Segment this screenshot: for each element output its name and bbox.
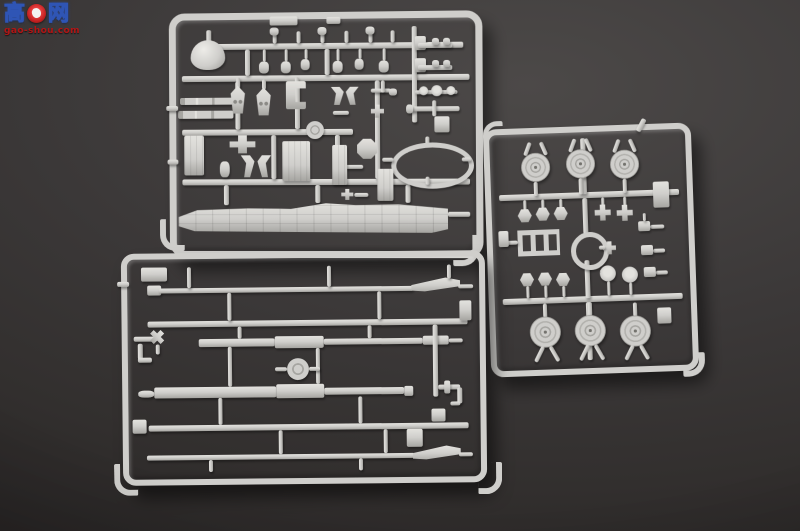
- frame-hook: [114, 464, 138, 496]
- watermark-logo: 高 网: [4, 3, 80, 24]
- stem: [562, 286, 565, 297]
- muzzle-part: [138, 391, 154, 398]
- hex-cap-part: [518, 209, 532, 222]
- stem: [263, 50, 266, 62]
- runner: [325, 49, 330, 75]
- small-part: [431, 85, 442, 96]
- stem: [656, 270, 668, 274]
- frame-hook: [683, 352, 706, 377]
- machine-gun-part: [180, 98, 233, 105]
- fitting-part: [444, 380, 450, 393]
- hatch-panel-part: [332, 145, 347, 185]
- gun-barrel-section: [154, 386, 276, 398]
- stem: [297, 31, 301, 43]
- hatch-panel-part: [377, 169, 393, 201]
- small-part: [379, 60, 389, 72]
- runner: [228, 347, 232, 387]
- hatch-panel-part: [184, 136, 204, 176]
- stem: [391, 30, 395, 42]
- runner: [271, 135, 276, 179]
- stem: [458, 284, 473, 288]
- gun-barrel-section: [199, 338, 275, 347]
- stem: [337, 49, 340, 61]
- wheels-sprue: [483, 122, 700, 377]
- stem: [447, 264, 451, 278]
- hub-cap-part: [600, 265, 617, 282]
- stem: [305, 49, 308, 59]
- small-part: [259, 61, 269, 73]
- gun-barrel-sleeve: [275, 336, 324, 349]
- frame-hook: [478, 462, 502, 494]
- stem: [236, 78, 240, 88]
- frame-stub: [168, 160, 179, 165]
- frame-tab: [431, 409, 445, 422]
- fitting-part: [257, 155, 272, 177]
- gun-barrel-section: [324, 387, 404, 395]
- frame-stub: [166, 106, 178, 111]
- runner: [148, 318, 468, 327]
- frame-tab: [326, 17, 340, 24]
- runner: [315, 185, 320, 203]
- stem: [623, 197, 626, 206]
- fitting-part: [371, 105, 384, 118]
- runner: [182, 74, 470, 82]
- stem: [599, 246, 605, 250]
- frame-tab: [657, 307, 672, 323]
- stem: [383, 48, 386, 60]
- fitting-part: [346, 87, 360, 105]
- stem: [588, 302, 592, 316]
- stem: [285, 49, 288, 61]
- oval-ring-part: [391, 142, 474, 189]
- frame-tab: [434, 116, 449, 132]
- watermark: 高 网 gao-shou.com: [4, 3, 80, 36]
- road-wheel: [565, 149, 595, 179]
- stem: [359, 49, 362, 59]
- frame-hook: [636, 118, 647, 133]
- frame-hook: [482, 121, 503, 144]
- stem: [279, 430, 283, 454]
- shield-part: [254, 87, 273, 115]
- gun-barrel-section: [324, 338, 423, 345]
- watermark-url: gao-shou.com: [4, 26, 80, 36]
- small-part: [432, 38, 439, 45]
- stem: [218, 398, 222, 425]
- stem: [534, 346, 545, 363]
- rail-part: [147, 453, 415, 461]
- rail-part: [159, 286, 413, 294]
- stem: [623, 179, 627, 193]
- small-part: [389, 88, 397, 95]
- stem: [624, 345, 635, 361]
- runner: [582, 198, 588, 234]
- small-part: [406, 104, 413, 113]
- hex-cap-part: [520, 273, 534, 286]
- road-wheel: [574, 315, 606, 347]
- runner: [503, 293, 683, 305]
- small-part: [419, 86, 428, 95]
- stem: [594, 344, 606, 361]
- hex-cap-part: [535, 207, 549, 220]
- disc-part: [287, 358, 309, 380]
- stem: [359, 458, 363, 470]
- frame-hook: [160, 219, 185, 251]
- stem: [462, 157, 471, 161]
- hatch-panel-part: [282, 141, 310, 181]
- frame-tab: [459, 300, 471, 320]
- stem: [262, 79, 266, 89]
- small-part: [270, 27, 279, 35]
- stem: [639, 344, 650, 360]
- small-part: [443, 60, 450, 67]
- fitting-part: [138, 358, 152, 363]
- stem: [382, 158, 393, 162]
- small-part: [220, 161, 230, 177]
- bracket-part: [638, 221, 650, 231]
- stem: [209, 460, 213, 472]
- fitting-part: [341, 189, 353, 200]
- bracket-part: [644, 267, 656, 277]
- stem: [358, 396, 362, 423]
- machine-gun-part: [178, 111, 233, 119]
- stem: [449, 338, 463, 342]
- stem: [526, 286, 529, 298]
- stem: [384, 429, 388, 453]
- stem: [544, 286, 547, 298]
- bracket-part: [641, 245, 653, 255]
- hex-cap-part: [556, 273, 570, 286]
- stem: [426, 177, 430, 185]
- hub-cap-part: [622, 266, 639, 283]
- stem: [377, 291, 381, 319]
- hatch-panel-part: [407, 429, 423, 447]
- barrels-sprue: [121, 250, 487, 486]
- small-part: [301, 59, 310, 70]
- fitting-part: [330, 87, 344, 105]
- stem: [523, 200, 526, 210]
- stem: [368, 325, 372, 338]
- small-part: [333, 61, 343, 73]
- road-wheel: [521, 152, 551, 182]
- road-wheel: [610, 149, 640, 179]
- dome-part: [191, 40, 226, 70]
- small-part: [317, 27, 326, 35]
- small-part: [281, 61, 291, 73]
- stem: [448, 212, 470, 217]
- frame-stub: [117, 282, 129, 287]
- stem: [238, 327, 242, 339]
- runner: [375, 81, 381, 179]
- hex-cap-part: [553, 207, 567, 220]
- watermark-char-left: 高: [4, 3, 25, 24]
- fitting-part: [432, 100, 436, 116]
- stem: [156, 345, 160, 355]
- disc-part: [306, 121, 324, 139]
- stem: [629, 283, 632, 295]
- frame-tab: [270, 16, 298, 25]
- stem: [549, 345, 561, 362]
- stem: [543, 304, 547, 318]
- stem: [275, 367, 287, 371]
- small-part: [355, 59, 364, 70]
- stem: [459, 452, 473, 456]
- stem: [344, 31, 348, 43]
- runner: [182, 129, 353, 136]
- fitting-part: [240, 155, 255, 177]
- fitting-part: [354, 193, 368, 197]
- fist-badge-icon: [27, 4, 46, 23]
- small-part: [365, 26, 374, 34]
- frame-tab: [141, 267, 167, 281]
- stem: [327, 266, 331, 287]
- hull-deck-part: [179, 202, 448, 233]
- small-part: [446, 86, 455, 95]
- fitting-part: [230, 135, 256, 153]
- frame-tab: [653, 181, 670, 208]
- fitting-part: [333, 111, 349, 115]
- runner: [224, 185, 229, 205]
- stem: [653, 248, 665, 252]
- road-wheel: [619, 315, 651, 347]
- stem: [650, 224, 664, 228]
- road-wheel: [529, 316, 561, 348]
- fitting-part: [450, 401, 460, 405]
- ladder-part: [517, 229, 560, 256]
- stem: [309, 367, 320, 371]
- runner: [405, 185, 410, 203]
- gun-barrel-sleeve: [276, 384, 324, 399]
- frame-tab: [498, 231, 509, 247]
- gun-barrel-tip: [404, 386, 413, 396]
- stem: [578, 178, 583, 194]
- fitting-part: [616, 205, 633, 222]
- rail-blade-tip: [413, 445, 461, 462]
- details-sprue: [169, 10, 484, 258]
- hex-cap-part: [538, 272, 552, 285]
- photo-stage: 高 网 gao-shou.com: [0, 0, 800, 531]
- stem: [607, 281, 610, 295]
- small-part: [443, 38, 450, 45]
- runner: [245, 50, 250, 76]
- fitting-part: [594, 204, 611, 221]
- stem: [643, 213, 646, 221]
- rail-blade-tip: [411, 277, 460, 294]
- stem: [227, 293, 231, 321]
- watermark-char-right: 网: [48, 3, 69, 24]
- fitting-part: [381, 81, 385, 93]
- stem: [187, 267, 191, 288]
- ring-part: [570, 231, 609, 270]
- frame-tab: [133, 420, 147, 434]
- stem: [534, 182, 538, 196]
- small-part: [432, 60, 439, 67]
- stem: [633, 302, 637, 316]
